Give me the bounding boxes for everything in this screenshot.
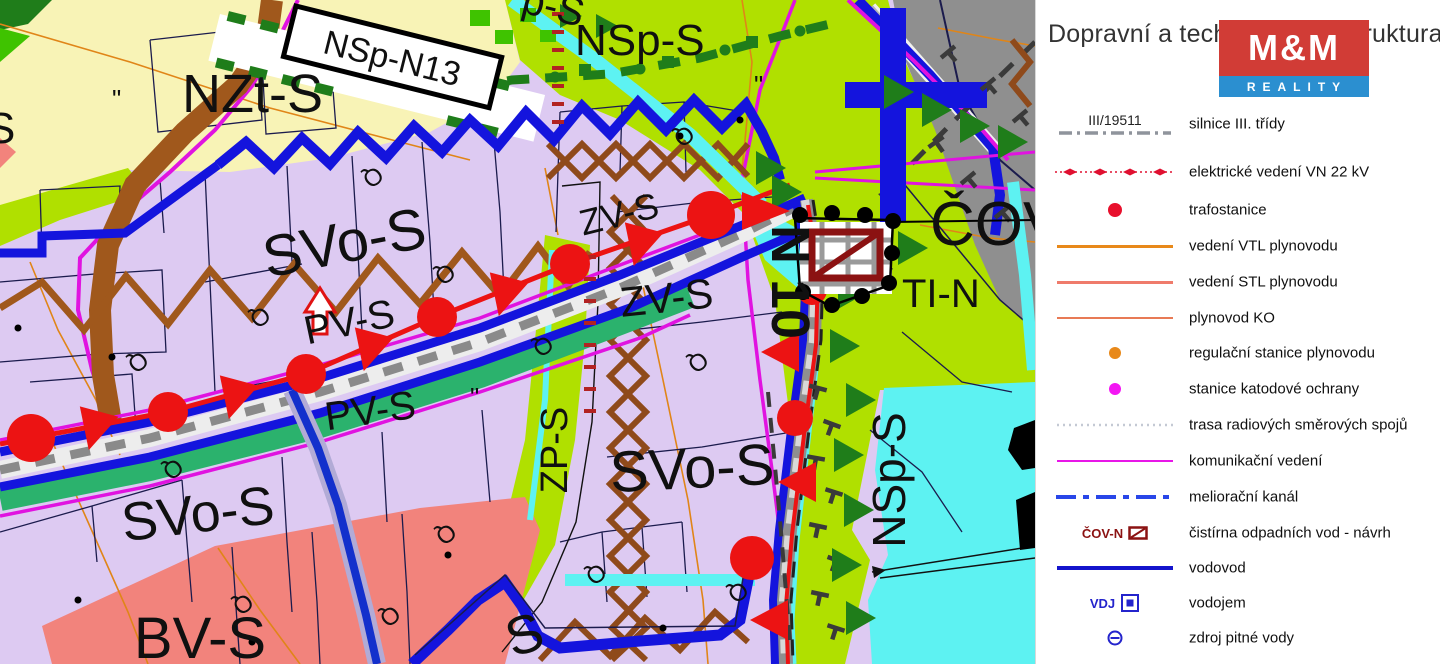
vdj-text-symbol: VDJ — [1090, 596, 1115, 611]
cov-n-icon — [1128, 526, 1148, 540]
map-label-cov: ČOV — [930, 190, 1035, 259]
svg-text:": " — [754, 70, 763, 100]
legend-item-vodojem: VDJ vodojem — [1036, 588, 1440, 618]
legend-item-silnice: III/19511 silnice III. třídy — [1036, 104, 1440, 144]
legend-item-ko: plynovod KO — [1036, 303, 1440, 333]
legend-item-katodova: stanice katodové ochrany — [1036, 374, 1440, 404]
gas-station-dot-symbol — [1109, 347, 1121, 359]
svg-text:": " — [470, 382, 479, 412]
map-label-n10: N 10 — [760, 225, 820, 339]
stl-line-symbol — [1057, 281, 1173, 284]
map-label-svo-s-3: SVo-S — [608, 432, 776, 506]
map-label-zv-s-2: ZV-S — [618, 269, 716, 326]
vodovod-line-symbol — [1057, 566, 1173, 570]
comm-line-symbol — [1057, 460, 1173, 463]
svg-text:": " — [112, 84, 121, 114]
legend-label: meliorační kanál — [1189, 489, 1298, 506]
screenshot-stage: NSp-N13 — [0, 0, 1440, 664]
legend-label: trasa radiových směrových spojů — [1189, 417, 1407, 434]
map-label-nzt-s: NZt-S — [182, 64, 323, 124]
power-line-symbol — [1055, 165, 1175, 179]
mm-reality-logo: M&M REALITY — [1219, 20, 1369, 97]
map-label-zp-s: ZP-S — [534, 407, 576, 494]
map-label-nsp-s-top: NSp-S — [575, 16, 705, 65]
map-label-cut-s-left: S — [0, 104, 15, 153]
legend-item-stl: vedení STL plynovodu — [1036, 267, 1440, 297]
legend-item-regulacni: regulační stanice plynovodu — [1036, 338, 1440, 368]
road-dashdot-symbol — [1059, 129, 1171, 137]
road-number-label: III/19511 — [1088, 112, 1141, 128]
vtl-line-symbol — [1057, 245, 1173, 248]
map-label-ti-n: TI-N — [902, 272, 980, 316]
vodojem-icon — [1120, 593, 1140, 613]
legend-label: vodojem — [1189, 595, 1246, 612]
logo-mm-text: M&M — [1219, 20, 1369, 76]
trafostanice-dot-symbol — [1108, 203, 1122, 217]
map-canvas: NSp-N13 — [0, 0, 1035, 664]
legend-item-cov: ČOV-N čistírna odpadních vod - návrh — [1036, 518, 1440, 548]
legend-item-vn22: elektrické vedení VN 22 kV — [1036, 157, 1440, 187]
radio-dotted-symbol — [1057, 422, 1173, 428]
legend-item-radio: trasa radiových směrových spojů — [1036, 410, 1440, 440]
cov-n-text-symbol: ČOV-N — [1082, 526, 1123, 541]
legend-item-trafostanice: trafostanice — [1036, 195, 1440, 225]
legend-item-zdroj: zdroj pitné vody — [1036, 623, 1440, 653]
legend-label: plynovod KO — [1189, 310, 1275, 327]
legend-item-vodovod: vodovod — [1036, 553, 1440, 583]
melioration-dashdot-symbol — [1056, 493, 1174, 501]
legend-label: zdroj pitné vody — [1189, 630, 1294, 647]
legend-label: vedení STL plynovodu — [1189, 274, 1338, 291]
legend-item-komunikacni: komunikační vedení — [1036, 446, 1440, 476]
map-label-bv-s: BV-S — [134, 606, 266, 664]
legend-item-melioracni: meliorační kanál — [1036, 482, 1440, 512]
cathode-dot-symbol — [1109, 383, 1121, 395]
logo-reality-text: REALITY — [1219, 76, 1369, 97]
legend-label: regulační stanice plynovodu — [1189, 345, 1375, 362]
water-source-icon — [1106, 629, 1124, 647]
legend-label: komunikační vedení — [1189, 453, 1322, 470]
legend-item-vtl: vedení VTL plynovodu — [1036, 231, 1440, 261]
legend-label: silnice III. třídy — [1189, 116, 1285, 133]
legend-label: trafostanice — [1189, 202, 1267, 219]
legend-label: čistírna odpadních vod - návrh — [1189, 525, 1391, 542]
ko-line-symbol — [1057, 317, 1173, 319]
legend-label: elektrické vedení VN 22 kV — [1189, 164, 1369, 181]
map-label-nsp-s-right: NSp-S — [863, 412, 915, 547]
legend-label: stanice katodové ochrany — [1189, 381, 1359, 398]
legend-label: vodovod — [1189, 560, 1246, 577]
legend-panel: Dopravní a technická infrastruktura M&M … — [1035, 0, 1440, 664]
legend-label: vedení VTL plynovodu — [1189, 238, 1338, 255]
